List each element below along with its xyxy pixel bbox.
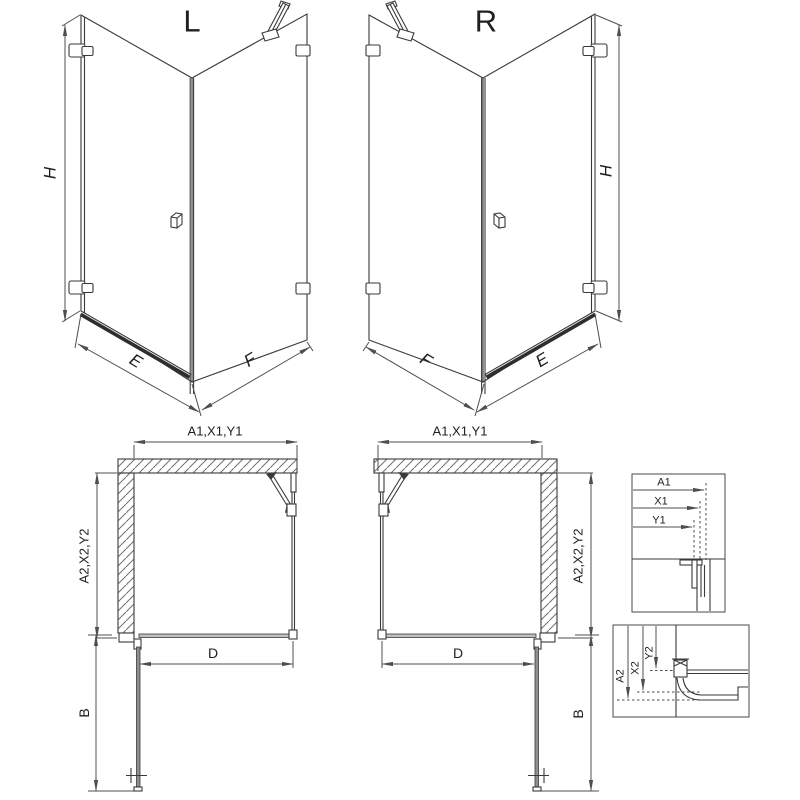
wall-hatch-side	[541, 473, 557, 633]
threshold-plan	[381, 634, 536, 638]
fixed-panel-plan	[379, 473, 384, 633]
wall-end-cap	[540, 633, 555, 642]
detail-horizontal-offsets	[632, 474, 725, 612]
hinge-profile-section	[672, 659, 748, 677]
hinge	[69, 44, 93, 57]
dim-label-opening-right: D	[453, 646, 463, 660]
variant-label-right: R	[475, 6, 497, 37]
diagram-canvas	[0, 0, 800, 800]
dim-height	[62, 15, 80, 322]
dim-label-top-plan-left: A1,X1,Y1	[188, 425, 243, 438]
corner-block	[378, 630, 386, 639]
plan-view-right	[374, 442, 599, 791]
dim-label-opening-left: D	[208, 646, 218, 660]
door-handle	[171, 213, 182, 228]
wall-end-cap	[119, 633, 134, 642]
detail-label-a1: A1	[657, 478, 670, 489]
detail-label-y2: Y2	[645, 646, 656, 659]
dim-label-side-plan-right: A2,X2,Y2	[572, 529, 585, 584]
door-panel	[483, 14, 595, 382]
detail-frame	[632, 474, 725, 612]
dim-door-length	[539, 635, 599, 791]
iso-view-right	[363, 1, 622, 416]
wall-clamp	[366, 45, 380, 56]
detail-label-y1: Y1	[652, 516, 665, 527]
side-panel	[192, 14, 307, 382]
dim-label-height-right: H	[598, 165, 615, 177]
wall-hatch-side	[118, 473, 134, 633]
detail-label-x1: X1	[654, 497, 667, 508]
plan-view-left	[88, 442, 297, 791]
dim-label-top-plan-right: A1,X1,Y1	[433, 425, 488, 438]
dim-label-door-plan-right: B	[571, 709, 585, 718]
dim-side-depth	[95, 473, 117, 638]
door-panel	[81, 15, 192, 382]
technical-drawing-page: L R H E F H F E A1,X1,Y1 A2,X2,Y2 D B A1…	[0, 0, 800, 800]
wall-hatch-top	[118, 459, 297, 473]
dim-label-height-left: H	[42, 167, 59, 179]
wall-clamp	[296, 283, 310, 294]
open-door-plan	[126, 639, 147, 791]
fixed-panel-plan	[291, 473, 296, 633]
wall-profile-section	[680, 559, 710, 611]
dim-door-length	[88, 635, 136, 791]
hinge	[583, 44, 607, 57]
open-door-plan	[528, 639, 549, 791]
threshold-plan	[139, 634, 294, 638]
corner-block	[289, 630, 297, 639]
dim-label-door-plan-left: B	[77, 708, 91, 717]
variant-label-left: L	[183, 6, 200, 37]
iso-view-left	[62, 1, 313, 416]
detail-label-x2: X2	[631, 661, 642, 674]
wall-hatch-top	[374, 459, 557, 473]
hinge	[583, 281, 607, 294]
door-handle	[494, 213, 505, 228]
hinge	[69, 281, 93, 294]
wall-clamp	[296, 45, 310, 56]
detail-label-a2: A2	[616, 669, 627, 682]
wall-clamp	[366, 283, 380, 294]
tray-profile-section	[677, 678, 748, 700]
side-panel	[369, 15, 483, 382]
dim-label-side-plan-left: A2,X2,Y2	[78, 529, 91, 584]
